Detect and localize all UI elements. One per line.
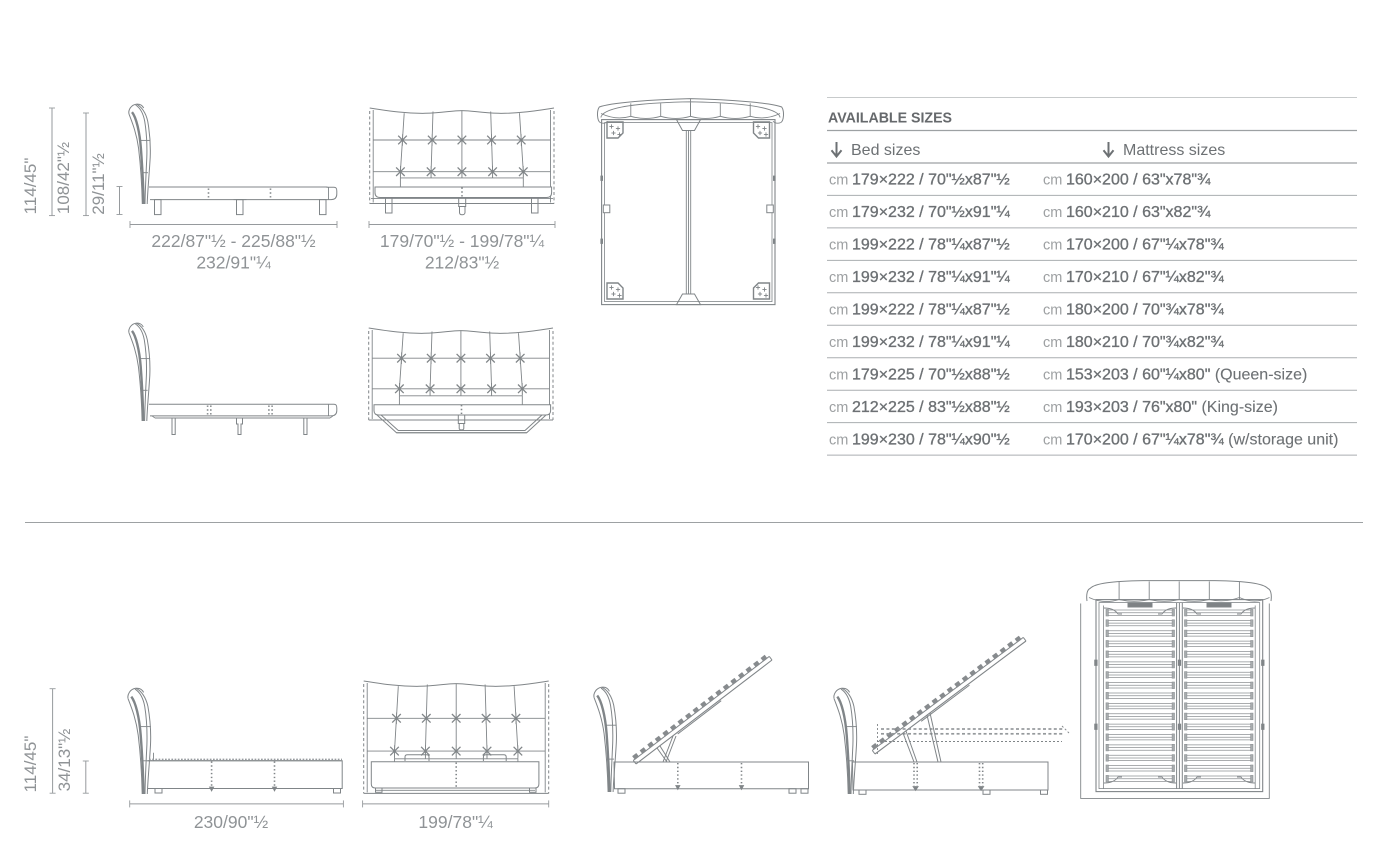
svg-text:cm: cm: [829, 173, 848, 189]
svg-text:180×200 / 70"¾x78"¾: 180×200 / 70"¾x78"¾: [1066, 302, 1224, 319]
svg-text:cm: cm: [829, 303, 848, 319]
svg-text:199/78"¼: 199/78"¼: [418, 812, 493, 832]
svg-text:160×210 / 63"x82"¾: 160×210 / 63"x82"¾: [1066, 204, 1211, 221]
svg-text:170×200 / 67"¼x78"¾ (w/storage: 170×200 / 67"¼x78"¾ (w/storage unit): [1066, 431, 1338, 448]
svg-text:199×232 / 78"¼x91"¼: 199×232 / 78"¼x91"¼: [852, 269, 1010, 286]
svg-text:34/13"½: 34/13"½: [55, 729, 74, 792]
svg-text:114/45": 114/45": [21, 736, 40, 793]
svg-text:160×200 / 63"x78"¾: 160×200 / 63"x78"¾: [1066, 172, 1211, 189]
svg-text:cm: cm: [1043, 432, 1062, 448]
svg-text:170×200 / 67"¼x78"¾: 170×200 / 67"¼x78"¾: [1066, 237, 1224, 254]
svg-text:Mattress sizes: Mattress sizes: [1123, 142, 1225, 159]
svg-text:cm: cm: [829, 400, 848, 416]
svg-text:179/70"½ - 199/78"¼: 179/70"½ - 199/78"¼: [380, 231, 545, 251]
svg-text:193×203 / 76"x80" (King-size): 193×203 / 76"x80" (King-size): [1066, 399, 1278, 416]
svg-text:cm: cm: [1043, 173, 1062, 189]
svg-text:AVAILABLE SIZES: AVAILABLE SIZES: [828, 110, 952, 127]
svg-text:199×232 / 78"¼x91"¼: 199×232 / 78"¼x91"¼: [852, 334, 1010, 351]
svg-text:cm: cm: [829, 270, 848, 286]
svg-text:179×232 / 70"½x91"¼: 179×232 / 70"½x91"¼: [852, 204, 1010, 221]
svg-text:170×210 / 67"¼x82"¾: 170×210 / 67"¼x82"¾: [1066, 269, 1224, 286]
svg-text:199×222 / 78"¼x87"½: 199×222 / 78"¼x87"½: [852, 302, 1010, 319]
svg-text:cm: cm: [829, 238, 848, 254]
svg-text:230/90"½: 230/90"½: [194, 812, 269, 832]
svg-text:222/87"½ - 225/88"½: 222/87"½ - 225/88"½: [151, 231, 316, 251]
svg-text:212×225 / 83"½x88"½: 212×225 / 83"½x88"½: [852, 399, 1010, 416]
svg-text:114/45": 114/45": [21, 158, 40, 215]
svg-text:cm: cm: [1043, 335, 1062, 351]
svg-text:cm: cm: [1043, 205, 1062, 221]
svg-text:232/91"¼: 232/91"¼: [196, 253, 271, 273]
svg-text:108/42"½: 108/42"½: [54, 142, 73, 214]
svg-text:180×210 / 70"¾x82"¾: 180×210 / 70"¾x82"¾: [1066, 334, 1224, 351]
svg-text:cm: cm: [1043, 270, 1062, 286]
svg-text:179×225 / 70"½x88"½: 179×225 / 70"½x88"½: [852, 366, 1010, 383]
svg-text:199×230 / 78"¼x90"½: 199×230 / 78"¼x90"½: [852, 431, 1010, 448]
svg-text:cm: cm: [1043, 238, 1062, 254]
svg-text:cm: cm: [829, 432, 848, 448]
svg-text:199×222 / 78"¼x87"½: 199×222 / 78"¼x87"½: [852, 237, 1010, 254]
svg-text:179×222 / 70"½x87"½: 179×222 / 70"½x87"½: [852, 172, 1010, 189]
svg-text:cm: cm: [829, 205, 848, 221]
svg-text:Bed sizes: Bed sizes: [851, 142, 920, 159]
svg-text:cm: cm: [1043, 367, 1062, 383]
svg-text:153×203 / 60"¼x80" (Queen-size: 153×203 / 60"¼x80" (Queen-size): [1066, 366, 1307, 383]
svg-text:212/83"½: 212/83"½: [425, 253, 500, 273]
svg-text:cm: cm: [829, 367, 848, 383]
svg-text:cm: cm: [829, 335, 848, 351]
svg-text:cm: cm: [1043, 303, 1062, 319]
svg-text:29/11"½: 29/11"½: [89, 153, 108, 215]
svg-text:cm: cm: [1043, 400, 1062, 416]
